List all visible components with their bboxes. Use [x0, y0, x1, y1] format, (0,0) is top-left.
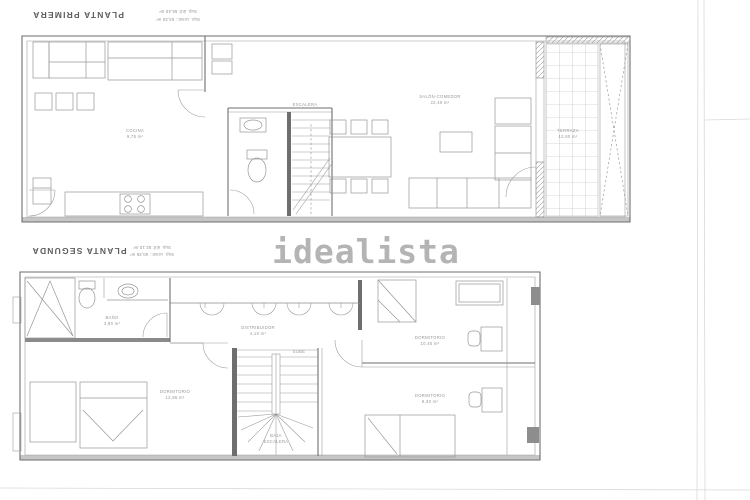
- hall-label: DISTRIBUIDOR: [241, 325, 275, 330]
- bedroom-area-label: 10,40 m²: [421, 341, 440, 346]
- chair: [468, 331, 480, 346]
- bedroom-area-label: 12,85 m²: [166, 395, 185, 400]
- terrace-label: TERRAZA: [557, 128, 579, 133]
- living-room: SALÓN-COMEDOR 22,40 m²: [409, 94, 531, 208]
- terrace-door-swing: [506, 167, 536, 197]
- second-floor-bathroom: BAÑO 3,90 m²: [25, 278, 168, 338]
- dining-area: [329, 120, 391, 193]
- floorplan-scan: COCINA 9,75 m²: [0, 0, 750, 500]
- dining-table: [329, 137, 391, 177]
- wardrobe: [456, 281, 503, 305]
- desk: [482, 388, 502, 412]
- kitchen-area-label: 9,75 m²: [127, 134, 144, 139]
- stairs-up-label: SUBE: [293, 349, 306, 354]
- kitchen-area: COCINA 9,75 m²: [29, 42, 232, 216]
- dining-chair: [372, 179, 388, 193]
- toilet-bowl: [248, 158, 266, 182]
- staircase-second-floor: SUBE BAJA ESCALERA: [232, 348, 322, 456]
- dining-chair: [351, 179, 367, 193]
- terrace: TERRAZA 12,60 m²: [506, 37, 630, 217]
- idealista-watermark: idealista: [272, 232, 460, 271]
- second-floor-title: PLANTA SEGUNDA: [31, 246, 126, 256]
- hall-door-swing: [178, 90, 205, 117]
- living-area-label: 22,40 m²: [431, 100, 450, 105]
- bedroom-master: DORMITORIO 12,85 m²: [30, 382, 191, 448]
- stove: [120, 194, 150, 214]
- bath-area-label: 3,90 m²: [104, 321, 121, 326]
- kitchen-label: COCINA: [126, 128, 144, 133]
- bath-door-swing: [230, 190, 254, 214]
- first-floor-bath-stairs: ESCALERA: [228, 102, 333, 216]
- wardrobe: [30, 382, 76, 442]
- sink: [118, 284, 138, 298]
- terrace-area-label: 12,60 m²: [559, 134, 578, 139]
- double-bed: [80, 382, 147, 448]
- bedroom-label: DORMITORIO: [415, 335, 446, 340]
- first-floor-note2: Sup. const.: 63,20 m²: [156, 17, 200, 22]
- fridge: [33, 42, 49, 78]
- staircase-first-floor: [292, 120, 333, 214]
- bedroom-area-label: 9,30 m²: [422, 399, 439, 404]
- floorplan-drawing: COCINA 9,75 m²: [0, 0, 750, 500]
- bedroom-label: DORMITORIO: [415, 393, 446, 398]
- bedroom-three: DORMITORIO 9,30 m²: [365, 388, 502, 457]
- hall-area-label: 4,10 m²: [250, 331, 267, 336]
- chair: [469, 392, 481, 407]
- bedroom-door-swing: [203, 343, 228, 368]
- bath-door-swing: [143, 313, 167, 337]
- corridor: DISTRIBUIDOR 4,10 m²: [170, 303, 362, 368]
- toilet-bowl: [79, 288, 95, 308]
- closet-door-swing: [200, 303, 224, 315]
- dining-chair: [351, 120, 367, 134]
- bedroom-door-swing: [335, 340, 362, 367]
- dining-chair: [372, 120, 388, 134]
- stairs-down-label: BAJA: [270, 433, 282, 438]
- first-floor-title: PLANTA PRIMERA: [32, 10, 124, 20]
- bedroom-label: DORMITORIO: [160, 389, 191, 394]
- first-floor-plan: COCINA 9,75 m²: [22, 9, 630, 222]
- second-floor-plan: BAÑO 3,90 m² DISTRIBUIDOR 4,10 m²: [13, 245, 540, 460]
- second-floor-note2: Sup. const.: 60,35 m²: [130, 252, 174, 257]
- second-floor-note1: Sup. útil: 52,10 m²: [133, 245, 171, 250]
- side-table: [495, 98, 531, 124]
- first-floor-note1: Sup. útil: 55,40 m²: [159, 9, 197, 14]
- bed: [365, 415, 455, 457]
- second-floor-walls: [13, 272, 540, 460]
- living-label: SALÓN-COMEDOR: [419, 94, 460, 99]
- coffee-table: [440, 132, 472, 152]
- bath-label: BAÑO: [105, 315, 119, 320]
- stairs-label: ESCALERA: [293, 102, 318, 107]
- desk: [481, 327, 502, 351]
- bedroom-two: DORMITORIO 10,40 m²: [378, 280, 503, 351]
- kitchen-counter: [65, 192, 203, 216]
- stairs-name-label: ESCALERA: [264, 439, 289, 444]
- sofa-horizontal: [409, 178, 531, 208]
